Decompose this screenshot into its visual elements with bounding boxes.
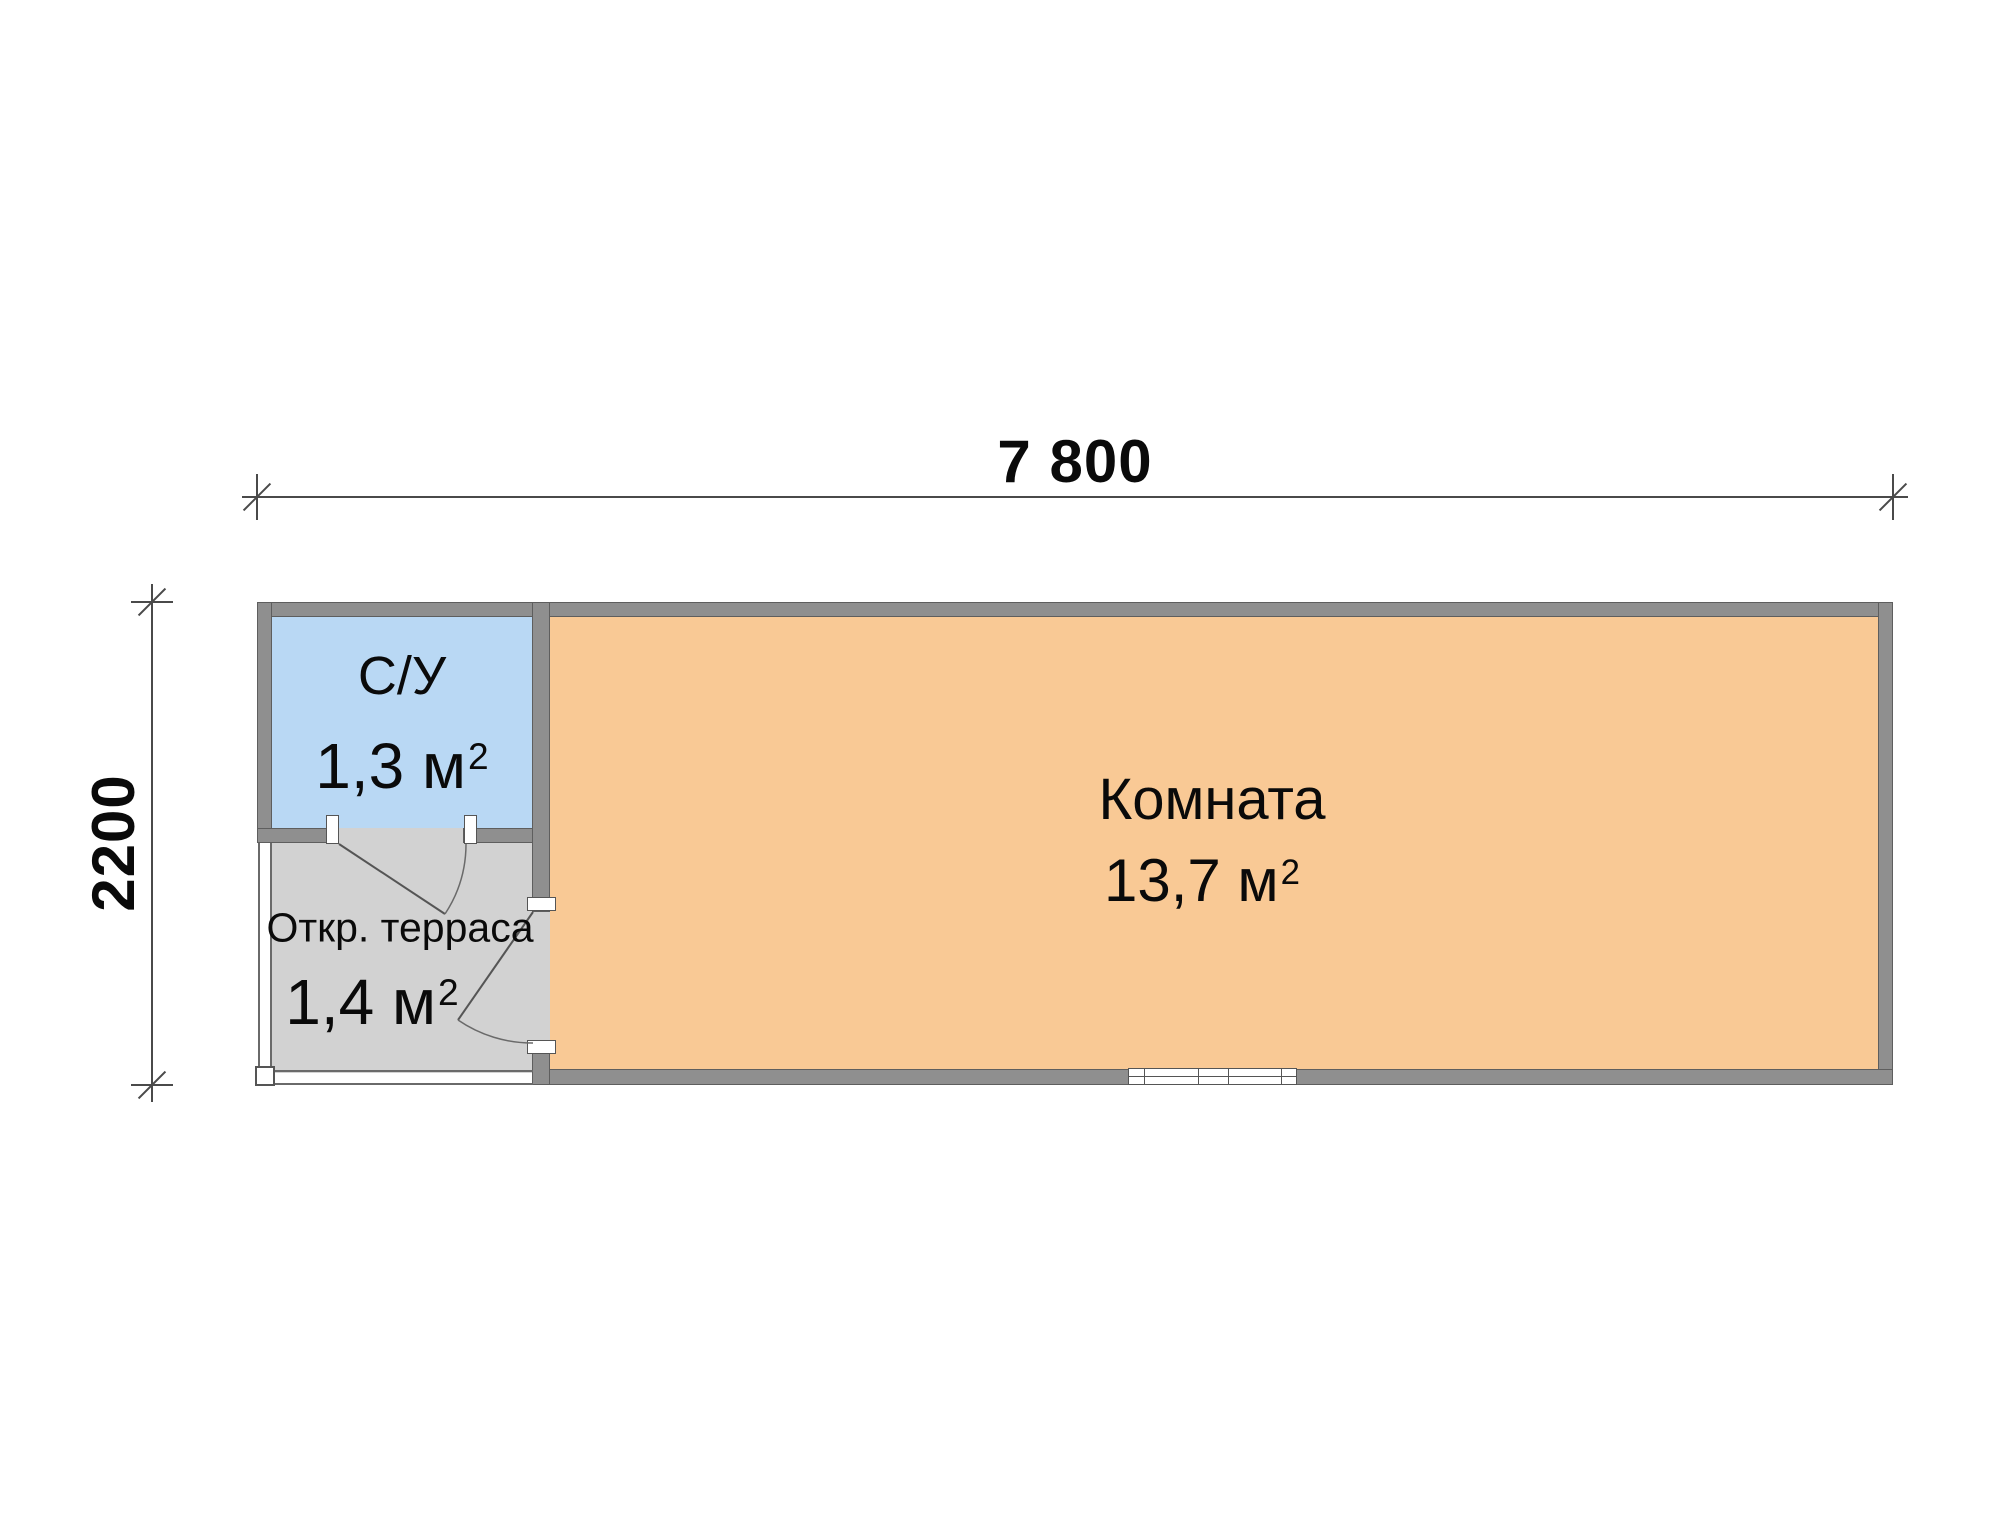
floor-plan: 7 800 2200 С/У 1,3 [0, 0, 2000, 1538]
bathroom-area-sup: 2 [468, 735, 489, 777]
terrace-area-sup: 2 [438, 971, 459, 1013]
main-room-area-label: 13,7 м2 [1104, 851, 1300, 911]
terrace-area-label: 1,4 м2 [285, 970, 458, 1034]
bathroom-label: С/У [358, 649, 446, 703]
bathroom-area-value: 1,3 м [315, 730, 466, 802]
terrace-label: Откр. терраса [266, 908, 533, 949]
main-room-area-sup: 2 [1281, 853, 1300, 892]
door-swings-layer [0, 0, 2000, 1538]
terrace-area-value: 1,4 м [285, 966, 436, 1038]
terrace-door-swing-icon [458, 1020, 533, 1043]
bathroom-door-swing-icon [445, 844, 466, 914]
main-room-label: Комната [1098, 771, 1325, 829]
bathroom-area-label: 1,3 м2 [315, 734, 488, 798]
main-room-area-value: 13,7 м [1104, 847, 1279, 914]
bathroom-door-leaf-icon [339, 844, 445, 914]
